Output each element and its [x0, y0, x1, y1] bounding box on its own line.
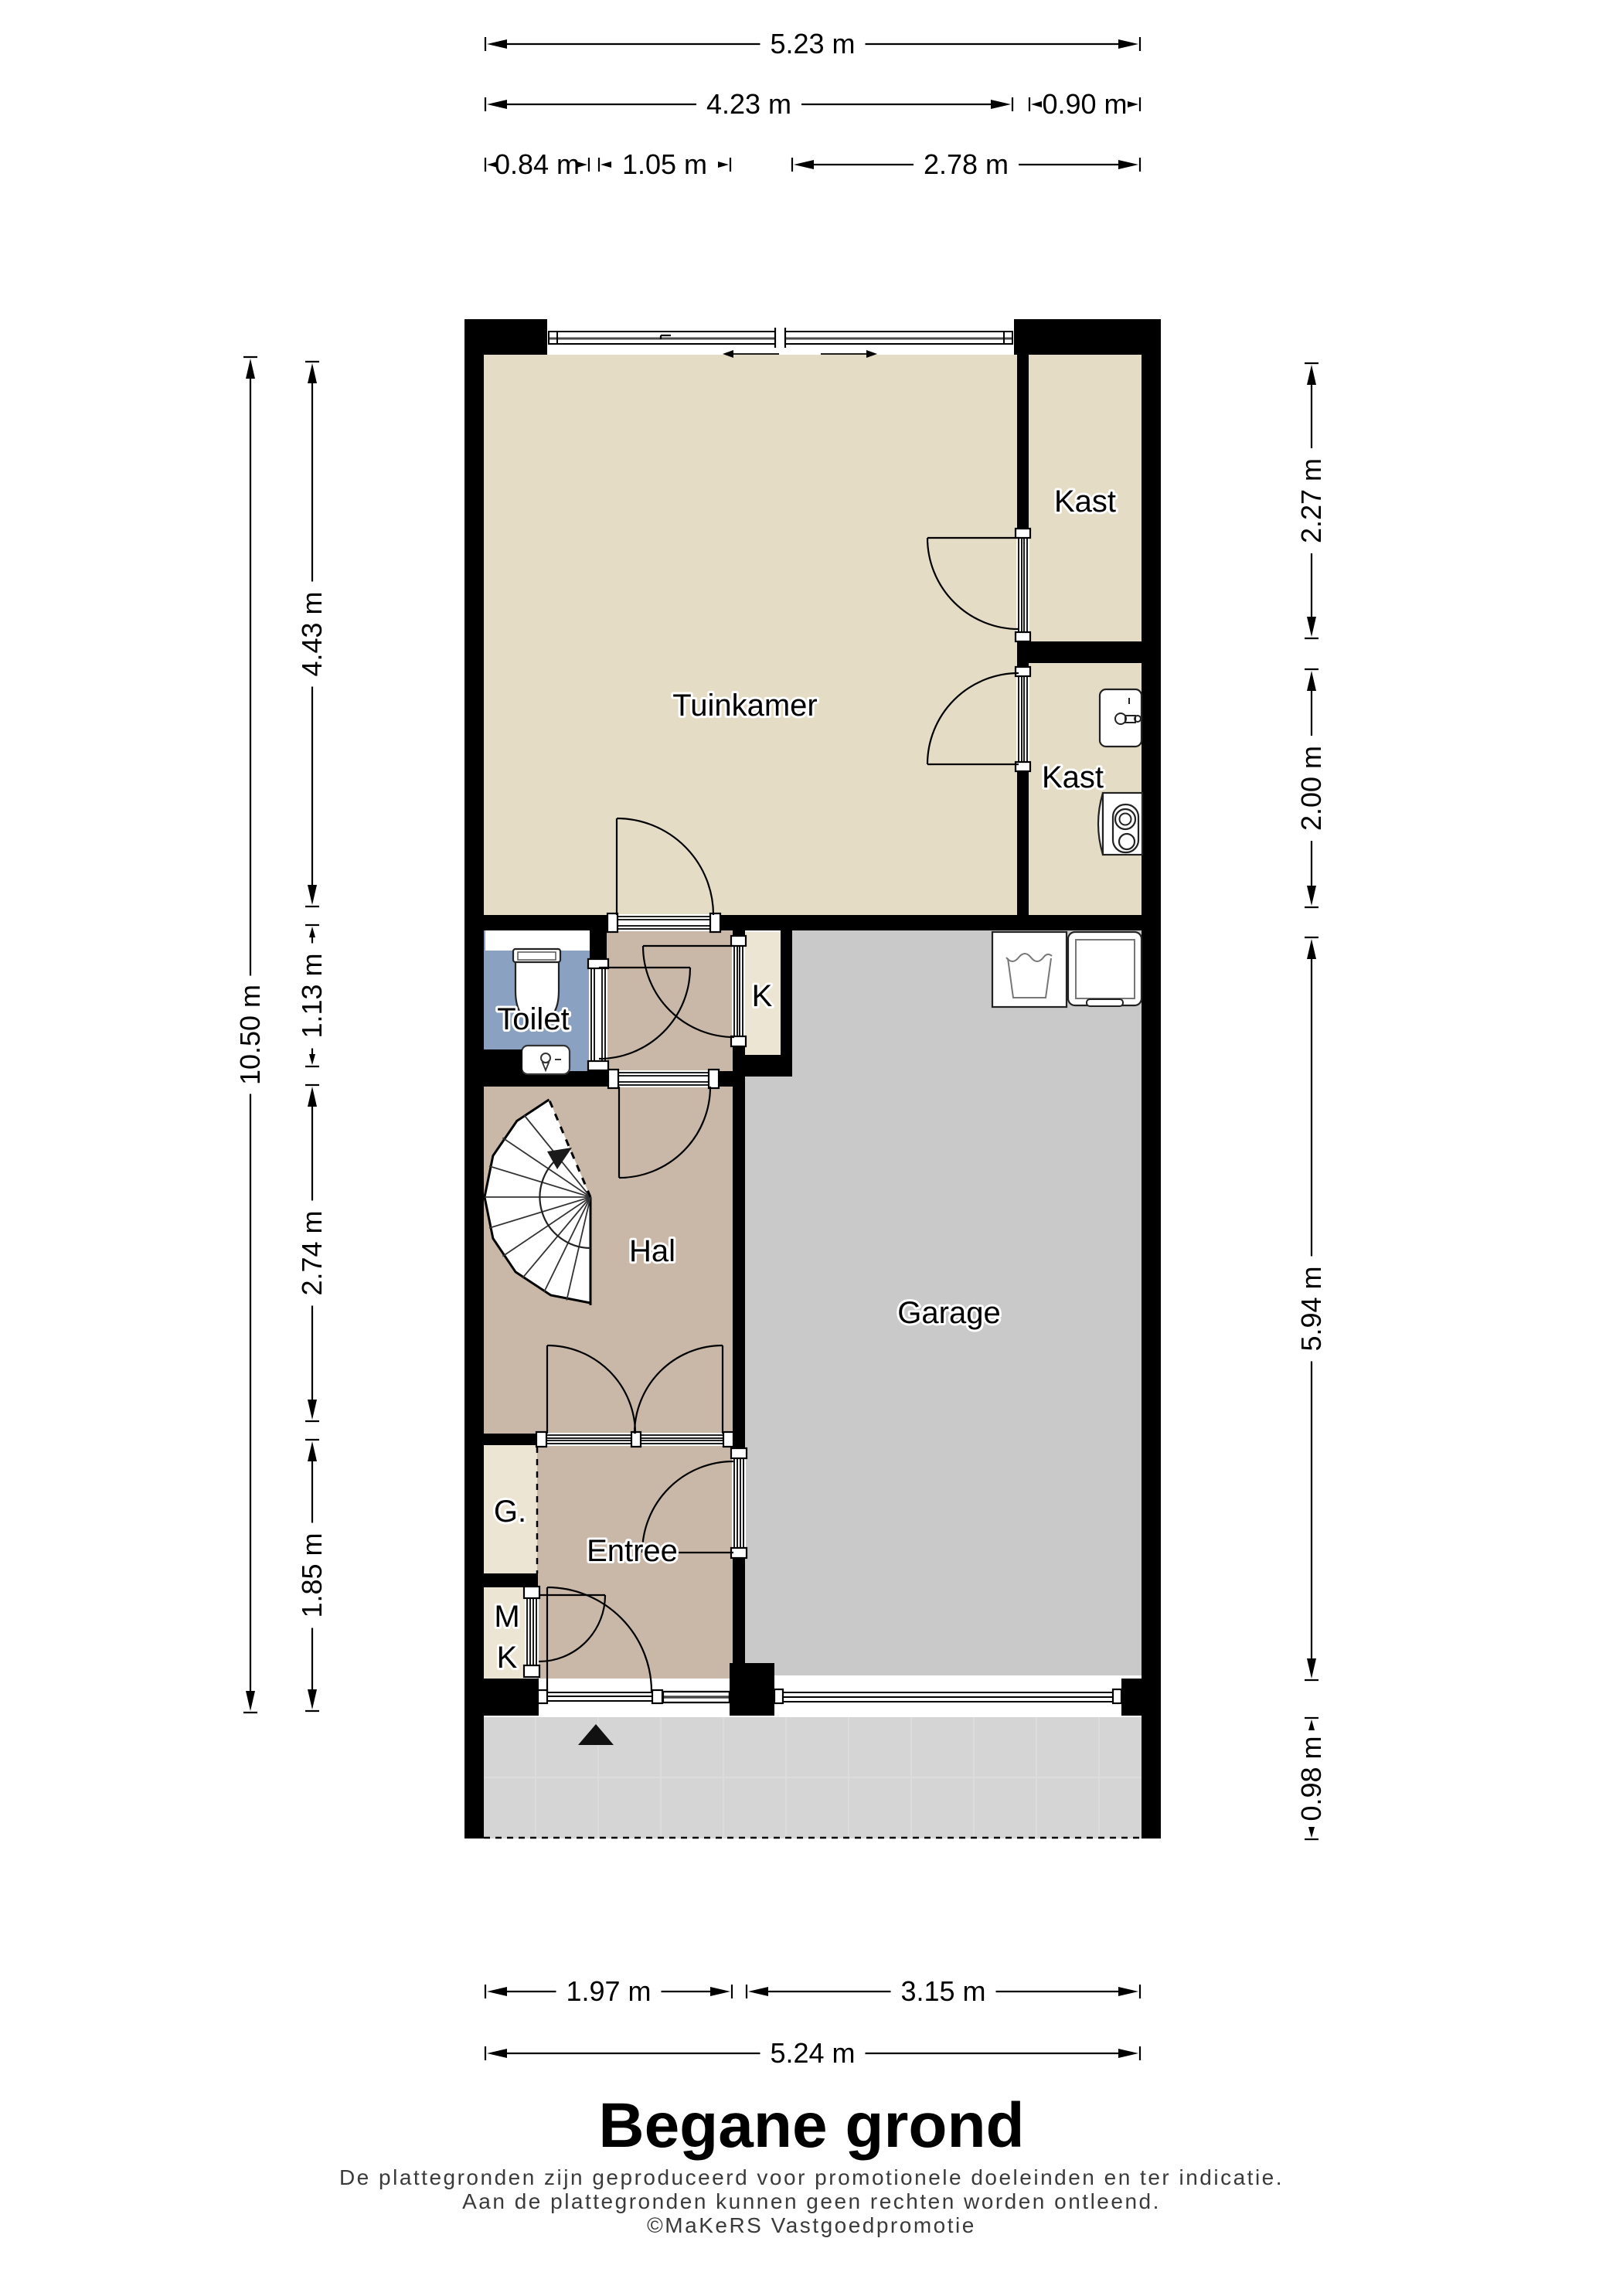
svg-text:©MaKeRS Vastgoedpromotie: ©MaKeRS Vastgoedpromotie	[647, 2213, 976, 2237]
svg-text:5.24 m: 5.24 m	[770, 2037, 855, 2069]
svg-text:3.15 m: 3.15 m	[900, 1975, 985, 2007]
svg-text:Garage: Garage	[897, 1296, 1000, 1330]
svg-text:4.43 m: 4.43 m	[296, 591, 328, 676]
svg-text:5.94 m: 5.94 m	[1295, 1266, 1327, 1351]
svg-text:Hal: Hal	[629, 1234, 675, 1268]
svg-text:0.98 m: 0.98 m	[1295, 1736, 1327, 1821]
svg-text:Kast: Kast	[1042, 760, 1104, 794]
svg-text:Toilet: Toilet	[497, 1002, 569, 1036]
svg-text:10.50 m: 10.50 m	[234, 985, 266, 1085]
svg-text:2.74 m: 2.74 m	[296, 1210, 328, 1295]
svg-text:G.: G.	[494, 1495, 526, 1529]
svg-text:K: K	[752, 979, 773, 1013]
svg-text:5.23 m: 5.23 m	[770, 28, 855, 60]
svg-text:1.85 m: 1.85 m	[296, 1532, 328, 1617]
svg-text:Aan de plattegronden kunnen ge: Aan de plattegronden kunnen geen rechten…	[462, 2189, 1161, 2213]
svg-text:2.00 m: 2.00 m	[1295, 746, 1327, 831]
svg-text:1.13 m: 1.13 m	[296, 953, 328, 1038]
svg-text:4.23 m: 4.23 m	[706, 88, 791, 120]
svg-text:De plattegronden zijn geproduc: De plattegronden zijn geproduceerd voor …	[339, 2165, 1284, 2189]
svg-text:Tuinkamer: Tuinkamer	[672, 689, 817, 723]
svg-text:Begane grond: Begane grond	[598, 2090, 1024, 2161]
svg-text:M: M	[494, 1600, 519, 1634]
svg-text:2.78 m: 2.78 m	[924, 148, 1009, 180]
svg-text:0.84 m: 0.84 m	[495, 148, 580, 180]
svg-text:K: K	[497, 1641, 518, 1675]
svg-text:0.90 m: 0.90 m	[1042, 88, 1127, 120]
svg-text:Kast: Kast	[1054, 485, 1116, 519]
svg-text:2.27 m: 2.27 m	[1295, 458, 1327, 543]
svg-text:1.97 m: 1.97 m	[566, 1975, 651, 2007]
svg-text:Entree: Entree	[587, 1534, 678, 1568]
svg-text:1.05 m: 1.05 m	[622, 148, 707, 180]
